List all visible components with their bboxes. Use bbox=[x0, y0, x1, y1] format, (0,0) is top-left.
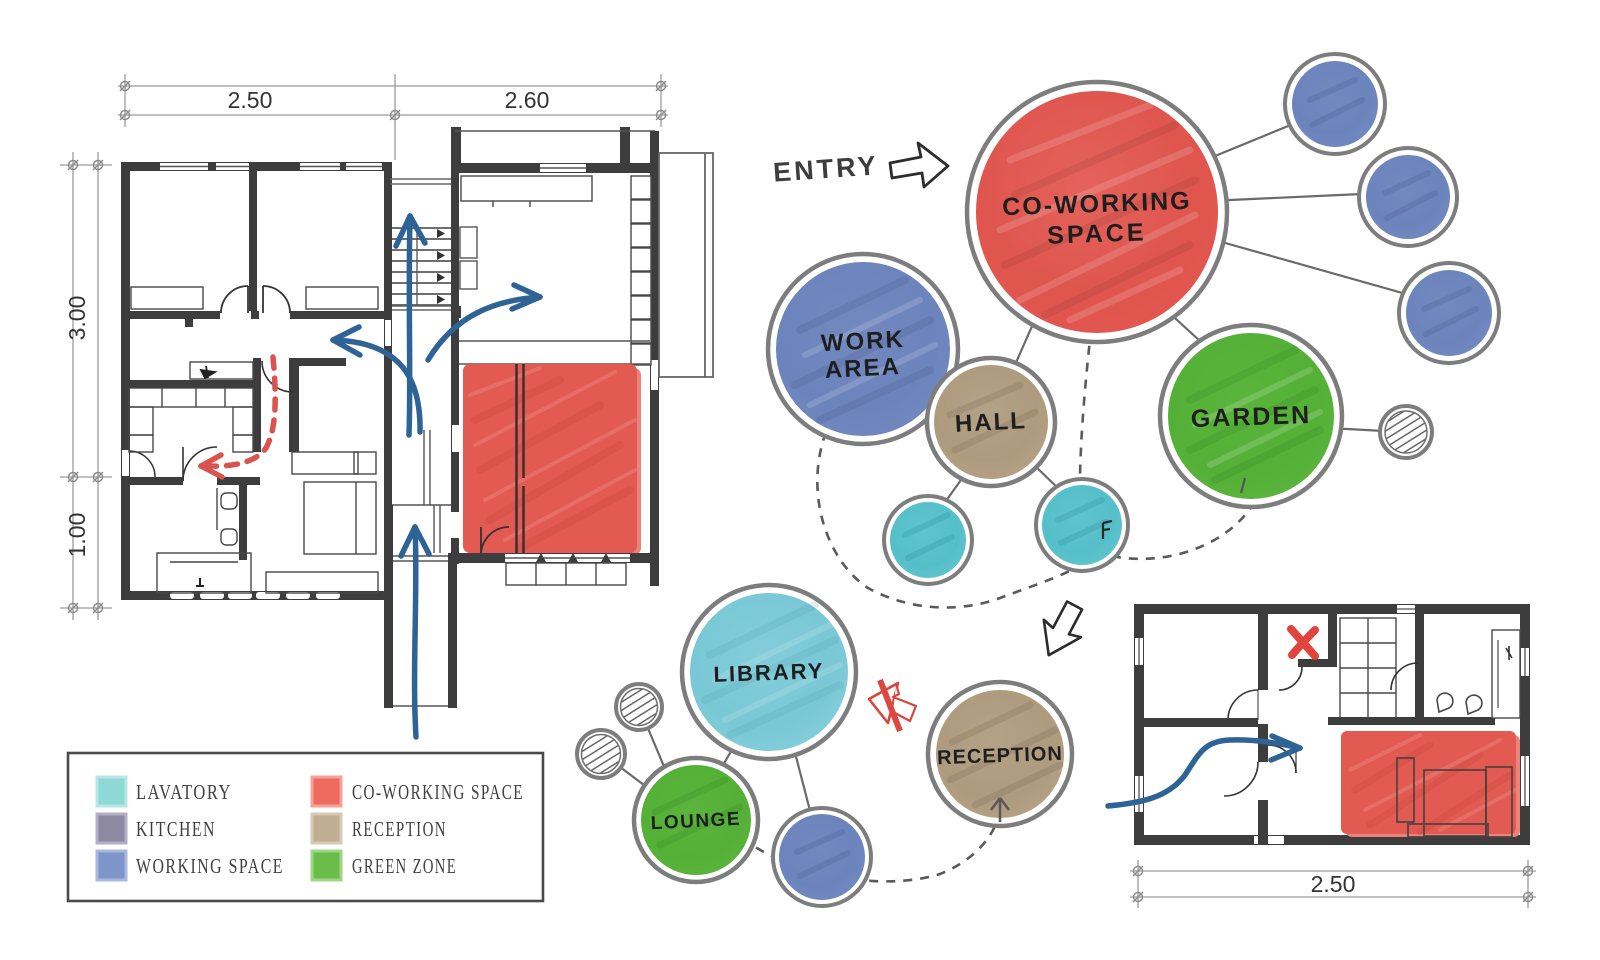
svg-text:1.00: 1.00 bbox=[64, 513, 90, 558]
svg-text:GREEN ZONE: GREEN ZONE bbox=[352, 854, 457, 878]
svg-text:CO-WORKING SPACE: CO-WORKING SPACE bbox=[352, 780, 524, 804]
svg-text:GARDEN: GARDEN bbox=[1190, 401, 1311, 433]
svg-text:SPACE: SPACE bbox=[1047, 218, 1147, 249]
svg-text:2.50: 2.50 bbox=[228, 87, 273, 113]
svg-text:2.50: 2.50 bbox=[1311, 871, 1356, 897]
svg-text:AREA: AREA bbox=[824, 353, 901, 384]
svg-text:2.60: 2.60 bbox=[505, 87, 550, 113]
svg-text:3.00: 3.00 bbox=[64, 296, 90, 341]
svg-text:LIBRARY: LIBRARY bbox=[713, 658, 825, 687]
svg-text:KITCHEN: KITCHEN bbox=[136, 817, 216, 841]
svg-text:HALL: HALL bbox=[954, 407, 1027, 438]
svg-text:LAVATORY: LAVATORY bbox=[136, 780, 232, 804]
svg-text:RECEPTION: RECEPTION bbox=[352, 817, 447, 841]
svg-text:RECEPTION: RECEPTION bbox=[937, 743, 1063, 769]
svg-text:WORKING SPACE: WORKING SPACE bbox=[136, 854, 284, 878]
